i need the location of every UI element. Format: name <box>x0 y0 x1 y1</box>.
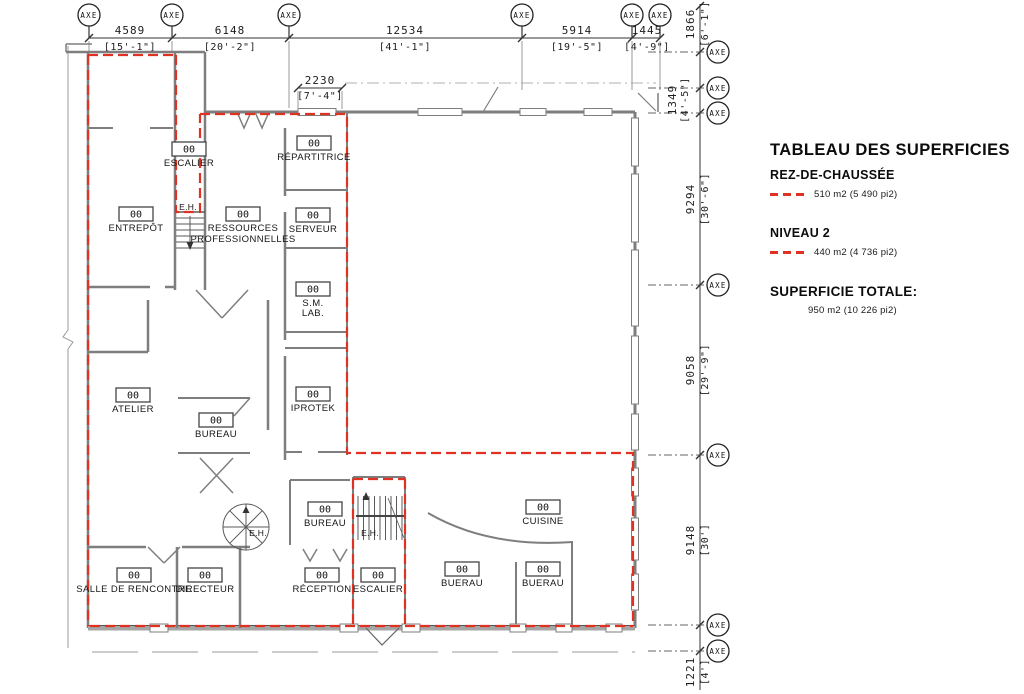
axe-bubble: AXE <box>707 102 729 124</box>
svg-text:AXE: AXE <box>709 281 726 290</box>
dim-top-3-imperial: [41'-1"] <box>379 42 431 53</box>
svg-text:AXE: AXE <box>709 451 726 460</box>
legend-total-area: 950 m2 (10 226 pi2) <box>770 305 1010 316</box>
eh-label-top-stair: E.H. <box>179 202 197 212</box>
svg-text:AXE: AXE <box>280 11 297 20</box>
context-lines <box>63 41 660 652</box>
svg-text:ESCALIER: ESCALIER <box>353 584 403 595</box>
axe-bubble: AXE <box>78 4 100 38</box>
dim-top-4-imperial: [19'-5"] <box>551 42 603 53</box>
exit-labels: E.H. E.H. E.H. <box>179 202 379 538</box>
dim-interior-mm: 2230 <box>305 74 336 87</box>
svg-text:00: 00 <box>372 571 384 582</box>
dim-top-4-mm: 5914 <box>562 24 593 37</box>
axe-bubble: AXE <box>707 444 729 466</box>
eh-label-bottom-stair: E.H. <box>361 528 379 538</box>
svg-text:LAB.: LAB. <box>302 308 324 319</box>
svg-text:00: 00 <box>210 416 222 427</box>
svg-text:00: 00 <box>130 210 142 221</box>
room-label-salle-de-rencontre: 00 SALLE DE RENCONTRE <box>76 568 191 595</box>
room-label-repartitrice: 00 RÉPARTITRICE <box>277 136 351 163</box>
area-table: TABLEAU DES SUPERFICIES REZ-DE-CHAUSSÉE … <box>770 141 1010 316</box>
legend-entry-n2-area: 440 m2 (4 736 pi2) <box>814 247 897 258</box>
svg-text:AXE: AXE <box>513 11 530 20</box>
svg-text:AXE: AXE <box>709 109 726 118</box>
room-label-serveur: 00 SERVEUR <box>289 208 338 235</box>
svg-text:AXE: AXE <box>709 84 726 93</box>
svg-text:PROFESSIONNELLES: PROFESSIONNELLES <box>190 234 295 245</box>
svg-text:AXE: AXE <box>623 11 640 20</box>
dim-right-3-imperial: [29'-9"] <box>700 344 711 396</box>
room-label-escalier-top: 00 ESCALIER <box>164 142 214 169</box>
room-label-sm-lab: 00 S.M. LAB. <box>296 282 330 319</box>
windows <box>150 109 639 633</box>
room-label-buerau-left: 00 BUERAU <box>441 562 483 589</box>
svg-text:00: 00 <box>237 210 249 221</box>
room-labels: 00 ESCALIER 00 ENTREPÔT 00 RESSOURCES PR… <box>76 136 564 595</box>
legend-entry-rdc-name: REZ-DE-CHAUSSÉE <box>770 168 1010 182</box>
room-label-buerau-right: 00 BUERAU <box>522 562 564 589</box>
svg-text:00: 00 <box>183 145 195 156</box>
svg-text:00: 00 <box>319 505 331 516</box>
svg-text:00: 00 <box>307 285 319 296</box>
axe-bubble: AXE <box>707 41 729 63</box>
room-label-bureau-mid: 00 BUREAU <box>195 413 237 440</box>
svg-text:DIRECTEUR: DIRECTEUR <box>175 584 234 595</box>
svg-text:AXE: AXE <box>709 621 726 630</box>
dim-top-1-mm: 4589 <box>115 24 146 37</box>
svg-text:BUREAU: BUREAU <box>195 429 237 440</box>
axe-bubble: AXE <box>161 4 183 38</box>
svg-text:SALLE DE RENCONTRE: SALLE DE RENCONTRE <box>76 584 191 595</box>
walls <box>66 44 658 645</box>
axe-bubble: AXE <box>278 4 300 38</box>
svg-text:BUERAU: BUERAU <box>522 578 564 589</box>
legend-entry-rdc-area: 510 m2 (5 490 pi2) <box>814 189 897 200</box>
svg-text:BUREAU: BUREAU <box>304 518 346 529</box>
floor-plan-drawing: 4589 [15'-1"] 6148 [20'-2"] 12534 [41'-1… <box>0 0 1024 694</box>
room-label-reception: 00 RÉCEPTION <box>292 568 351 595</box>
axe-bubble: AXE <box>511 4 533 38</box>
floor-plan-page: { "colors": { "overlay_red": "#DF3222", … <box>0 0 1024 694</box>
dim-right-2-mm: 9294 <box>684 184 697 215</box>
dim-right-4-imperial: [30'] <box>700 524 711 557</box>
svg-text:IPROTEK: IPROTEK <box>291 403 336 414</box>
dim-top-5-imperial: [4'-9"] <box>624 42 670 53</box>
svg-text:AXE: AXE <box>163 11 180 20</box>
svg-text:00: 00 <box>308 139 320 150</box>
dim-right-1-imperial: [4'-5"] <box>680 77 691 123</box>
legend-entry-n2: 440 m2 (4 736 pi2) <box>770 247 1010 258</box>
legend-entry-rdc: 510 m2 (5 490 pi2) <box>770 189 1010 200</box>
svg-text:AXE: AXE <box>709 647 726 656</box>
room-label-entrepot: 00 ENTREPÔT <box>109 207 164 234</box>
axe-bubble: AXE <box>707 640 729 662</box>
svg-text:AXE: AXE <box>651 11 668 20</box>
red-area-overlay <box>88 55 633 626</box>
room-label-atelier: 00 ATELIER <box>112 388 154 415</box>
svg-text:RÉCEPTION: RÉCEPTION <box>292 584 351 595</box>
room-label-iprotek: 00 IPROTEK <box>291 387 336 414</box>
svg-text:AXE: AXE <box>709 48 726 57</box>
dim-right-3-mm: 9058 <box>684 355 697 386</box>
legend-entry-n2-name: NIVEAU 2 <box>770 226 1010 240</box>
svg-text:ESCALIER: ESCALIER <box>164 158 214 169</box>
dim-interior-imperial: [7'-4"] <box>297 91 343 102</box>
svg-text:00: 00 <box>128 571 140 582</box>
room-label-bureau-bottom: 00 BUREAU <box>304 502 346 529</box>
dim-right-5-mm: 1221 <box>684 657 697 688</box>
dimension-chain-top: 4589 [15'-1"] 6148 [20'-2"] 12534 [41'-1… <box>85 24 670 53</box>
room-label-escalier-bottom: 00 ESCALIER <box>353 568 403 595</box>
axe-bubble: AXE <box>707 614 729 636</box>
dim-top-2-imperial: [20'-2"] <box>204 42 256 53</box>
svg-text:00: 00 <box>537 503 549 514</box>
svg-text:RÉPARTITRICE: RÉPARTITRICE <box>277 152 351 163</box>
dim-right-2-imperial: [30'-6"] <box>700 173 711 225</box>
svg-text:00: 00 <box>307 390 319 401</box>
svg-text:ENTREPÔT: ENTREPÔT <box>109 223 164 234</box>
dim-tr-mm: 1866 <box>684 9 697 40</box>
svg-text:00: 00 <box>127 391 139 402</box>
dim-right-1-mm: 1349 <box>666 85 679 116</box>
svg-text:00: 00 <box>537 565 549 576</box>
dim-tr-imperial: [6'-1"] <box>700 1 711 47</box>
svg-text:AXE: AXE <box>80 11 97 20</box>
room-label-cuisine: 00 CUISINE <box>522 500 563 527</box>
dim-top-2-mm: 6148 <box>215 24 246 37</box>
dim-right-4-mm: 9148 <box>684 525 697 556</box>
svg-text:CUISINE: CUISINE <box>522 516 563 527</box>
red-dash-sample-icon <box>770 193 804 196</box>
axe-bubble: AXE <box>707 77 729 99</box>
legend-total-label: SUPERFICIE TOTALE: <box>770 284 1010 299</box>
red-dash-sample-icon <box>770 251 804 254</box>
svg-text:RESSOURCES: RESSOURCES <box>208 223 279 234</box>
svg-text:BUERAU: BUERAU <box>441 578 483 589</box>
svg-text:00: 00 <box>456 565 468 576</box>
dim-right-5-imperial: [4'] <box>700 659 711 685</box>
svg-text:00: 00 <box>307 211 319 222</box>
svg-text:00: 00 <box>199 571 211 582</box>
dimension-interior: 2230 [7'-4"] <box>294 74 346 109</box>
axe-bubble: AXE <box>707 274 729 296</box>
room-label-directeur: 00 DIRECTEUR <box>175 568 234 595</box>
dim-top-1-imperial: [15'-1"] <box>104 42 156 53</box>
svg-text:00: 00 <box>316 571 328 582</box>
area-table-title: TABLEAU DES SUPERFICIES <box>770 141 1010 160</box>
svg-text:SERVEUR: SERVEUR <box>289 224 338 235</box>
dim-top-3-mm: 12534 <box>386 24 424 37</box>
eh-label-spiral-stair: E.H. <box>249 528 267 538</box>
svg-text:ATELIER: ATELIER <box>112 404 154 415</box>
